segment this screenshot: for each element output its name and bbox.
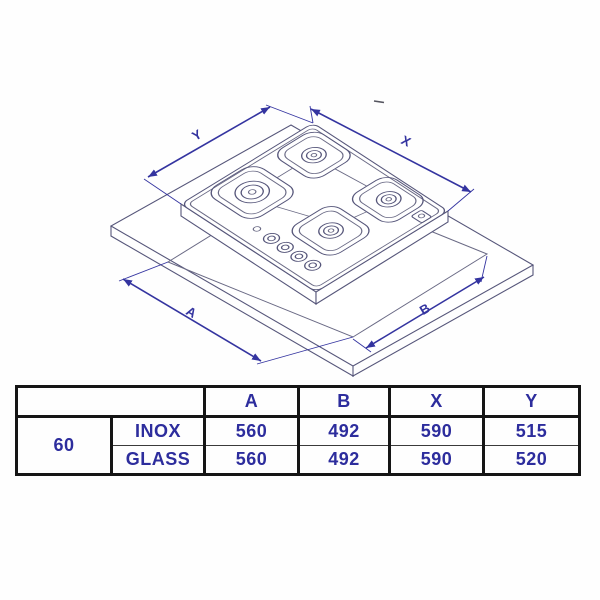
spec-sheet-page: Y X A B A B X Y 60 INOX 560 492 590 515: [0, 0, 600, 600]
col-header-y: Y: [484, 387, 580, 417]
dimensions-table: A B X Y 60 INOX 560 492 590 515 GLASS 56…: [15, 385, 581, 476]
value-glass-y: 520: [484, 446, 580, 475]
table-corner-cell: [17, 387, 205, 417]
table-row-inox: 60 INOX 560 492 590 515: [17, 417, 580, 446]
value-inox-y: 515: [484, 417, 580, 446]
dimension-label-y: Y: [189, 126, 204, 143]
dimension-label-a: A: [183, 303, 199, 321]
material-cell-glass: GLASS: [112, 446, 205, 475]
value-inox-x: 590: [390, 417, 484, 446]
size-cell: 60: [17, 417, 112, 475]
value-inox-b: 492: [299, 417, 390, 446]
material-cell-inox: INOX: [112, 417, 205, 446]
dimension-label-x: X: [399, 132, 414, 149]
value-inox-a: 560: [205, 417, 299, 446]
value-glass-a: 560: [205, 446, 299, 475]
col-header-a: A: [205, 387, 299, 417]
col-header-b: B: [299, 387, 390, 417]
hob-isometric-diagram: Y X A B: [0, 0, 600, 384]
value-glass-x: 590: [390, 446, 484, 475]
scan-artifact-mark: [374, 101, 384, 103]
table-header-row: A B X Y: [17, 387, 580, 417]
value-glass-b: 492: [299, 446, 390, 475]
col-header-x: X: [390, 387, 484, 417]
